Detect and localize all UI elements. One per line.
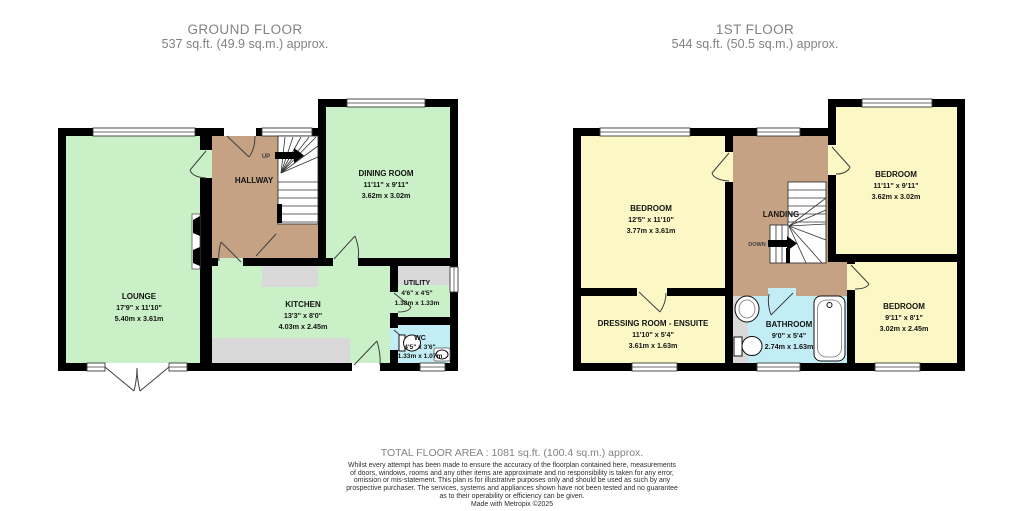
svg-text:3.62m x 3.02m: 3.62m x 3.02m	[362, 191, 411, 200]
window	[875, 363, 920, 371]
window	[420, 363, 445, 371]
dining-label: DINING ROOM 11'11" x 9'11" 3.62m x 3.02m	[358, 169, 413, 200]
window	[169, 363, 187, 371]
svg-text:3.02m x 2.45m: 3.02m x 2.45m	[880, 324, 929, 333]
disclaimer-line: as to their operability or efficiency ca…	[346, 493, 678, 501]
svg-text:LOUNGE: LOUNGE	[122, 292, 157, 301]
bathroom-label: BATHROOM 9'0" x 5'4" 2.74m x 1.63m	[765, 320, 814, 351]
svg-text:DINING ROOM: DINING ROOM	[358, 169, 413, 178]
svg-text:1.38m x 1.33m: 1.38m x 1.33m	[395, 300, 440, 307]
kitchen-label: KITCHEN 13'3" x 8'0" 4.03m x 2.45m	[279, 300, 328, 331]
svg-text:BEDROOM: BEDROOM	[630, 204, 672, 213]
disclaimer-line: of doors, windows, rooms and any other i…	[346, 470, 678, 478]
kitchen-counter	[262, 266, 318, 287]
landing-label: LANDING	[763, 210, 799, 219]
disclaimer-text: Whilst every attempt has been made to en…	[346, 462, 678, 508]
svg-text:11'10" x 5'4": 11'10" x 5'4"	[632, 330, 674, 339]
kitchen-counter	[212, 338, 350, 363]
fireplace-icon	[192, 214, 200, 269]
disclaimer-line: Whilst every attempt has been made to en…	[346, 462, 678, 470]
window	[262, 128, 312, 136]
svg-text:3.62m x 3.02m: 3.62m x 3.02m	[872, 192, 921, 201]
down-label: DOWN	[748, 242, 765, 248]
svg-text:11'11" x 9'11": 11'11" x 9'11"	[363, 180, 408, 189]
disclaimer-line: omission or mis-statement. This plan is …	[346, 477, 678, 485]
svg-text:1.33m x 1.07m: 1.33m x 1.07m	[398, 353, 443, 360]
svg-text:17'9" x 11'10": 17'9" x 11'10"	[116, 303, 162, 312]
window	[600, 128, 690, 136]
sink-icon	[735, 296, 759, 322]
svg-text:11'11" x 9'11": 11'11" x 9'11"	[873, 181, 918, 190]
window	[757, 128, 800, 136]
bedroom-side-label: BEDROOM 9'11" x 8'1" 3.02m x 2.45m	[880, 302, 929, 333]
total-floor-area: TOTAL FLOOR AREA : 1081 sq.ft. (100.4 sq…	[381, 447, 643, 459]
svg-text:12'5" x 11'10": 12'5" x 11'10"	[628, 215, 674, 224]
svg-text:BATHROOM: BATHROOM	[766, 320, 813, 329]
credit-line: Made with Metropix ©2025	[346, 501, 678, 509]
floorplan-page: GROUND FLOOR 537 sq.ft. (49.9 sq.m.) app…	[0, 0, 1024, 511]
ground-floor-plan: UP	[58, 99, 458, 391]
svg-text:BEDROOM: BEDROOM	[875, 170, 917, 179]
window	[862, 99, 932, 107]
toilet-icon	[734, 337, 762, 357]
svg-text:9'0" x 5'4": 9'0" x 5'4"	[772, 331, 806, 340]
first-floor-plan: DOWN	[573, 99, 965, 371]
svg-text:2.74m x 1.63m: 2.74m x 1.63m	[765, 342, 814, 351]
svg-text:4'5" x 3'6": 4'5" x 3'6"	[404, 344, 435, 351]
window	[93, 128, 195, 136]
svg-text:WC: WC	[414, 335, 426, 342]
svg-text:3.77m x 3.61m: 3.77m x 3.61m	[627, 226, 676, 235]
lounge-label: LOUNGE 17'9" x 11'10" 5.40m x 3.61m	[115, 292, 164, 323]
svg-text:KITCHEN: KITCHEN	[285, 300, 321, 309]
bedroom-rear-label: BEDROOM 11'11" x 9'11" 3.62m x 3.02m	[872, 170, 921, 201]
svg-text:DRESSING ROOM - ENSUITE: DRESSING ROOM - ENSUITE	[598, 319, 709, 328]
svg-text:13'3" x 8'0": 13'3" x 8'0"	[284, 311, 322, 320]
hallway-label: HALLWAY	[235, 176, 274, 185]
window	[757, 363, 800, 371]
svg-text:3.61m x 1.63m: 3.61m x 1.63m	[629, 341, 678, 350]
bathtub-icon	[814, 296, 845, 361]
bedroom-front-label: BEDROOM 12'5" x 11'10" 3.77m x 3.61m	[627, 204, 676, 235]
svg-text:9'11" x 8'1": 9'11" x 8'1"	[885, 313, 923, 322]
lounge-room	[66, 136, 200, 363]
floorplan-canvas: UP	[0, 0, 1024, 511]
up-label: UP	[262, 154, 270, 160]
window	[87, 363, 105, 371]
svg-text:4'6" x 4'5": 4'6" x 4'5"	[401, 290, 432, 297]
svg-text:BEDROOM: BEDROOM	[883, 302, 925, 311]
svg-text:UTILITY: UTILITY	[404, 280, 431, 287]
disclaimer-line: prospective purchaser. The services, sys…	[346, 485, 678, 493]
window	[347, 99, 425, 107]
svg-text:5.40m x 3.61m: 5.40m x 3.61m	[115, 314, 164, 323]
window	[632, 363, 677, 371]
landing-room	[828, 262, 847, 296]
svg-text:4.03m x 2.45m: 4.03m x 2.45m	[279, 322, 328, 331]
window	[450, 267, 458, 292]
